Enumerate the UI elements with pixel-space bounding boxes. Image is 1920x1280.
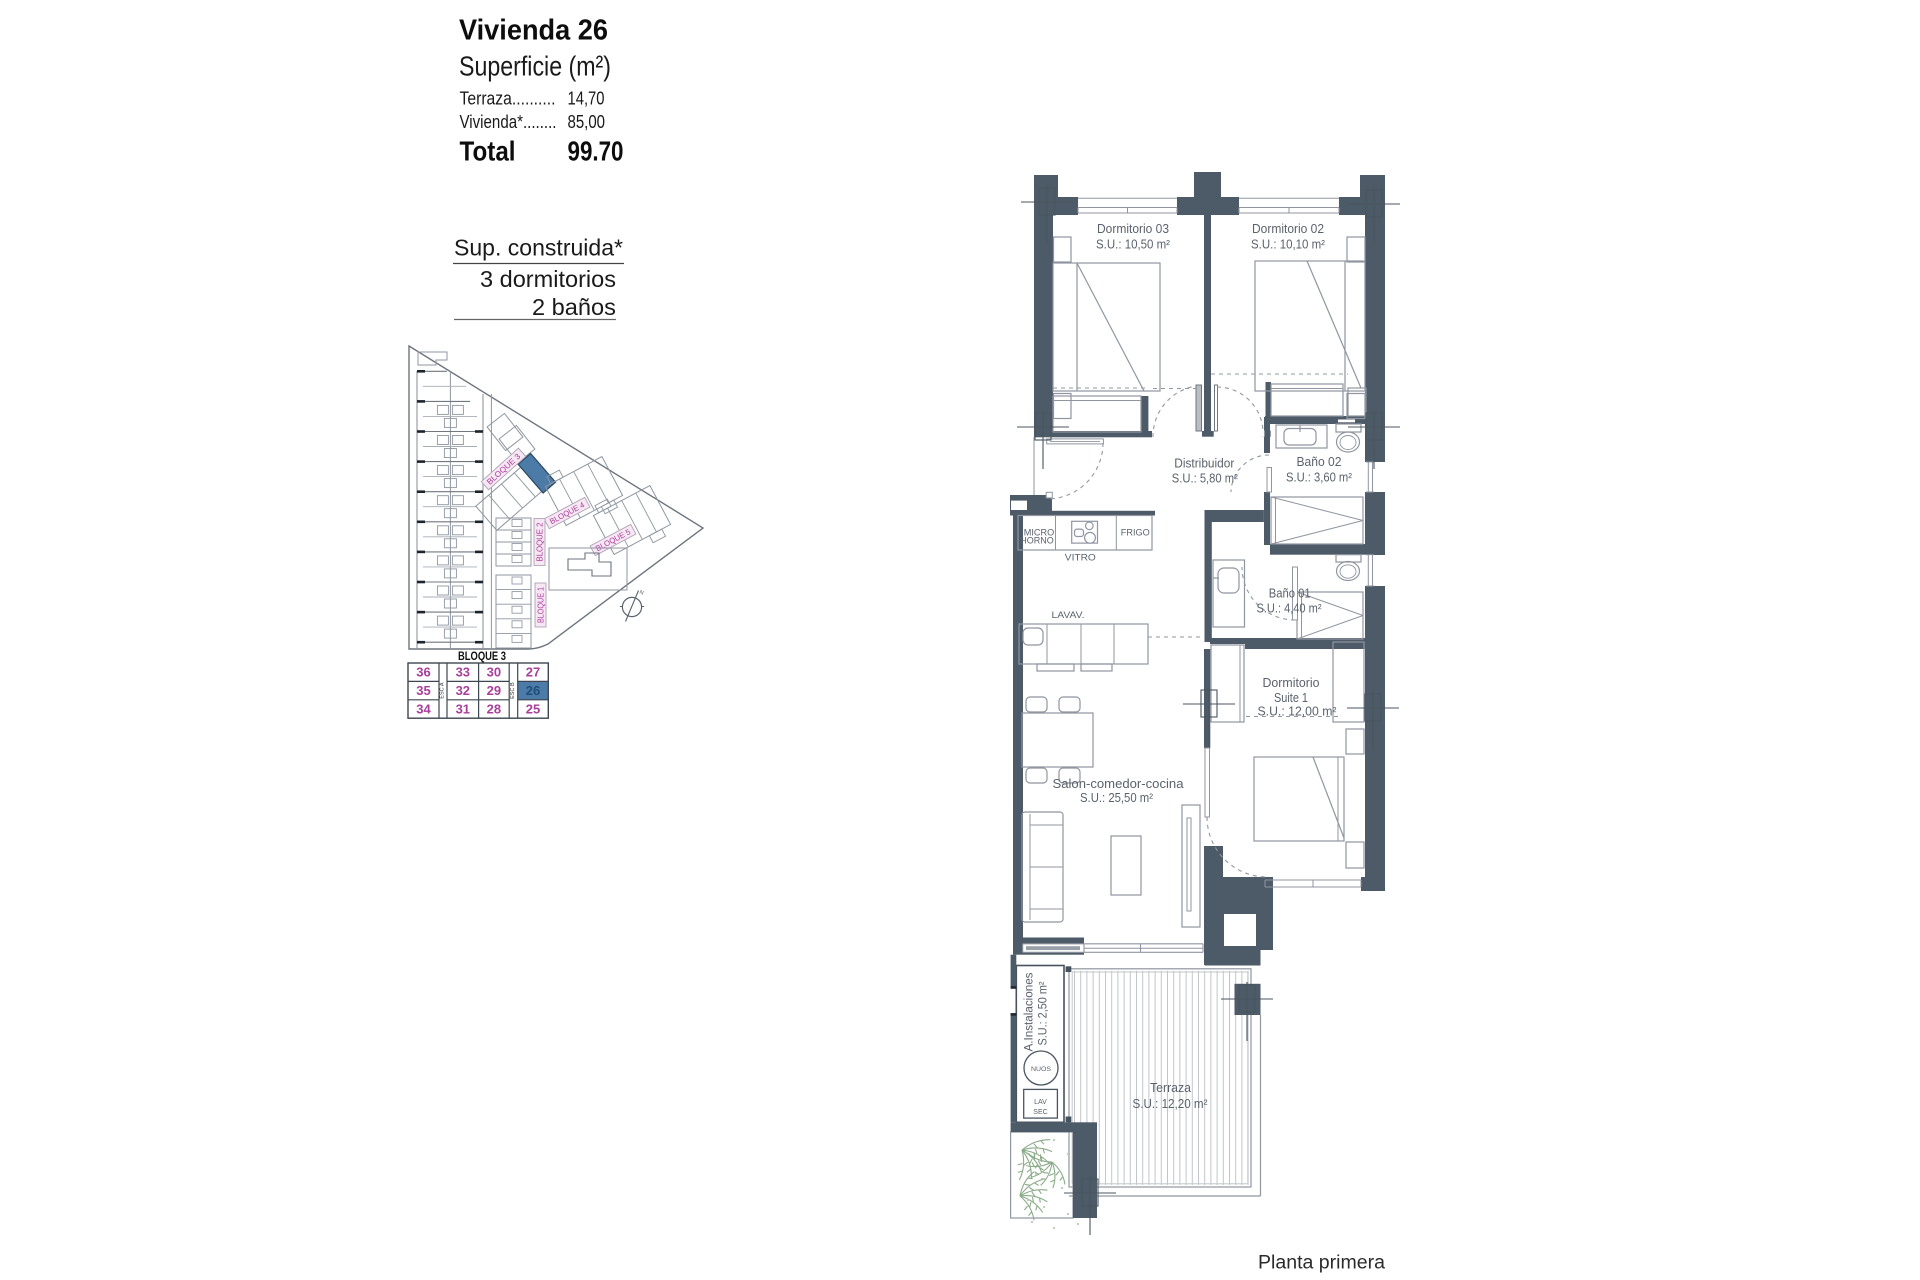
svg-text:S.U.: 4,40 m²: S.U.: 4,40 m² bbox=[1257, 601, 1323, 616]
svg-text:34: 34 bbox=[416, 702, 431, 717]
svg-text:S.U.: 10,10 m²: S.U.: 10,10 m² bbox=[1251, 237, 1326, 252]
svg-text:Superficie (m²): Superficie (m²) bbox=[459, 51, 611, 82]
svg-text:S.U.: 2,50 m²: S.U.: 2,50 m² bbox=[1038, 981, 1050, 1045]
svg-text:HORNO: HORNO bbox=[1020, 535, 1054, 545]
svg-text:Dormitorio: Dormitorio bbox=[1263, 675, 1320, 690]
svg-text:Dormitorio 02: Dormitorio 02 bbox=[1252, 221, 1324, 236]
svg-text:S.U.: 12,20 m²: S.U.: 12,20 m² bbox=[1133, 1096, 1209, 1111]
svg-text:NUOS: NUOS bbox=[1031, 1066, 1052, 1073]
svg-text:Distribuidor: Distribuidor bbox=[1174, 456, 1235, 471]
svg-text:31: 31 bbox=[456, 702, 470, 717]
svg-text:ESC A: ESC A bbox=[440, 682, 446, 699]
svg-text:Vivienda 26: Vivienda 26 bbox=[459, 15, 608, 47]
svg-text:Baño 02: Baño 02 bbox=[1297, 454, 1342, 469]
svg-text:Terraza..........: Terraza.......... bbox=[460, 87, 556, 108]
svg-text:14,70: 14,70 bbox=[568, 87, 605, 108]
svg-text:Baño 01: Baño 01 bbox=[1269, 586, 1311, 601]
svg-text:S.U.: 5,80 m²: S.U.: 5,80 m² bbox=[1172, 471, 1239, 486]
svg-text:Terraza: Terraza bbox=[1150, 1080, 1192, 1095]
svg-text:FRIGO: FRIGO bbox=[1121, 528, 1150, 539]
svg-text:Total: Total bbox=[460, 136, 516, 167]
svg-text:S.U.: 25,50 m²: S.U.: 25,50 m² bbox=[1080, 790, 1154, 805]
svg-text:99.70: 99.70 bbox=[568, 136, 624, 167]
svg-text:28: 28 bbox=[487, 702, 501, 717]
svg-text:33: 33 bbox=[456, 665, 470, 680]
svg-text:32: 32 bbox=[456, 683, 470, 698]
svg-text:LAVAV.: LAVAV. bbox=[1052, 610, 1085, 621]
svg-text:BLOQUE 3: BLOQUE 3 bbox=[458, 649, 506, 663]
svg-text:Planta primera: Planta primera bbox=[1258, 1252, 1385, 1274]
svg-text:3 dormitorios: 3 dormitorios bbox=[480, 266, 616, 292]
svg-text:26: 26 bbox=[526, 683, 540, 698]
svg-text:A.Instalaciones: A.Instalaciones bbox=[1024, 972, 1036, 1051]
svg-text:ESC B: ESC B bbox=[510, 682, 516, 699]
svg-text:Vivienda*........: Vivienda*........ bbox=[460, 111, 557, 132]
svg-text:LAV: LAV bbox=[1034, 1099, 1047, 1106]
svg-text:S.U.: 10,50 m²: S.U.: 10,50 m² bbox=[1096, 237, 1171, 252]
svg-text:2 baños: 2 baños bbox=[532, 294, 616, 320]
svg-text:85,00: 85,00 bbox=[568, 111, 606, 132]
svg-text:Salon-comedor-cocina: Salon-comedor-cocina bbox=[1053, 776, 1185, 791]
svg-text:25: 25 bbox=[526, 702, 540, 717]
svg-text:30: 30 bbox=[487, 665, 501, 680]
svg-text:SEC: SEC bbox=[1033, 1109, 1047, 1116]
svg-text:BLOQUE 2: BLOQUE 2 bbox=[535, 522, 544, 562]
svg-text:Dormitorio 03: Dormitorio 03 bbox=[1097, 221, 1169, 236]
svg-text:35: 35 bbox=[416, 683, 430, 698]
svg-text:S.U.: 12,00 m²: S.U.: 12,00 m² bbox=[1258, 704, 1338, 719]
svg-text:BLOQUE 1: BLOQUE 1 bbox=[536, 587, 545, 623]
svg-text:29: 29 bbox=[487, 683, 501, 698]
svg-text:Sup. construida*: Sup. construida* bbox=[454, 235, 623, 261]
svg-text:36: 36 bbox=[416, 665, 430, 680]
svg-text:VITRO: VITRO bbox=[1065, 553, 1096, 564]
svg-text:S.U.: 3,60 m²: S.U.: 3,60 m² bbox=[1286, 470, 1353, 485]
svg-text:27: 27 bbox=[526, 665, 540, 680]
